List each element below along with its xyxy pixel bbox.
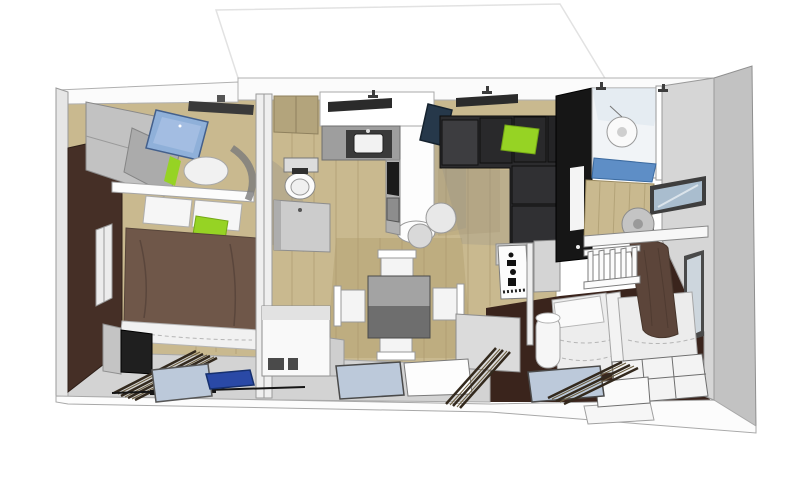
sink-basin [354, 134, 383, 153]
vanity-side [274, 200, 281, 250]
wall-mark [576, 245, 580, 249]
dining-chair-south [377, 338, 415, 360]
support-pole [527, 243, 533, 345]
blue-mat [206, 370, 254, 389]
deco-figure [509, 253, 514, 258]
stove-front [387, 162, 399, 196]
skylight-latch [179, 125, 182, 128]
toilet-hinge [292, 168, 308, 174]
left-outer-wall [56, 88, 68, 400]
bunk-rail [584, 245, 640, 289]
toilet-seat [291, 179, 309, 195]
oven-front [387, 198, 399, 222]
sofa-green-pillow [501, 125, 539, 154]
pillow [143, 196, 192, 227]
floorplan-stage [0, 0, 800, 480]
dining-chair-west [334, 286, 365, 326]
sofa-cushion [442, 120, 478, 165]
toilet [284, 158, 318, 199]
sink-faucet [366, 129, 370, 133]
sofa-cushion [512, 166, 562, 204]
deco-panel [498, 245, 529, 299]
shower-head-center [617, 127, 627, 137]
desk-side-panel [103, 324, 121, 374]
deco-figure [510, 269, 516, 275]
dining-chair-north [378, 250, 416, 276]
water-heater-cylinder [536, 313, 560, 368]
table-bottom [368, 306, 430, 338]
white-panel [404, 359, 472, 396]
pouf [184, 157, 228, 185]
deco-figure [507, 260, 516, 266]
bar-stool [426, 203, 456, 233]
glass-panel [336, 362, 404, 399]
vent-grille [268, 358, 284, 370]
bar-stool [408, 224, 432, 248]
twin-bed-left [552, 293, 616, 376]
vanity-cabinet [274, 200, 330, 252]
floorplan-rendering [0, 0, 800, 480]
sofa-cushion [512, 206, 562, 244]
deco-figure [508, 278, 516, 286]
table-top [368, 276, 430, 306]
fan-hub [633, 219, 643, 229]
right-outer-wall [714, 66, 756, 428]
glass-panel [152, 364, 212, 402]
desk-unit [121, 330, 152, 374]
wall-light-strip [570, 166, 584, 231]
light-bracket [217, 95, 225, 102]
vent-grille [288, 358, 298, 370]
faucet [298, 208, 302, 212]
white-cabinet-top [262, 306, 330, 320]
